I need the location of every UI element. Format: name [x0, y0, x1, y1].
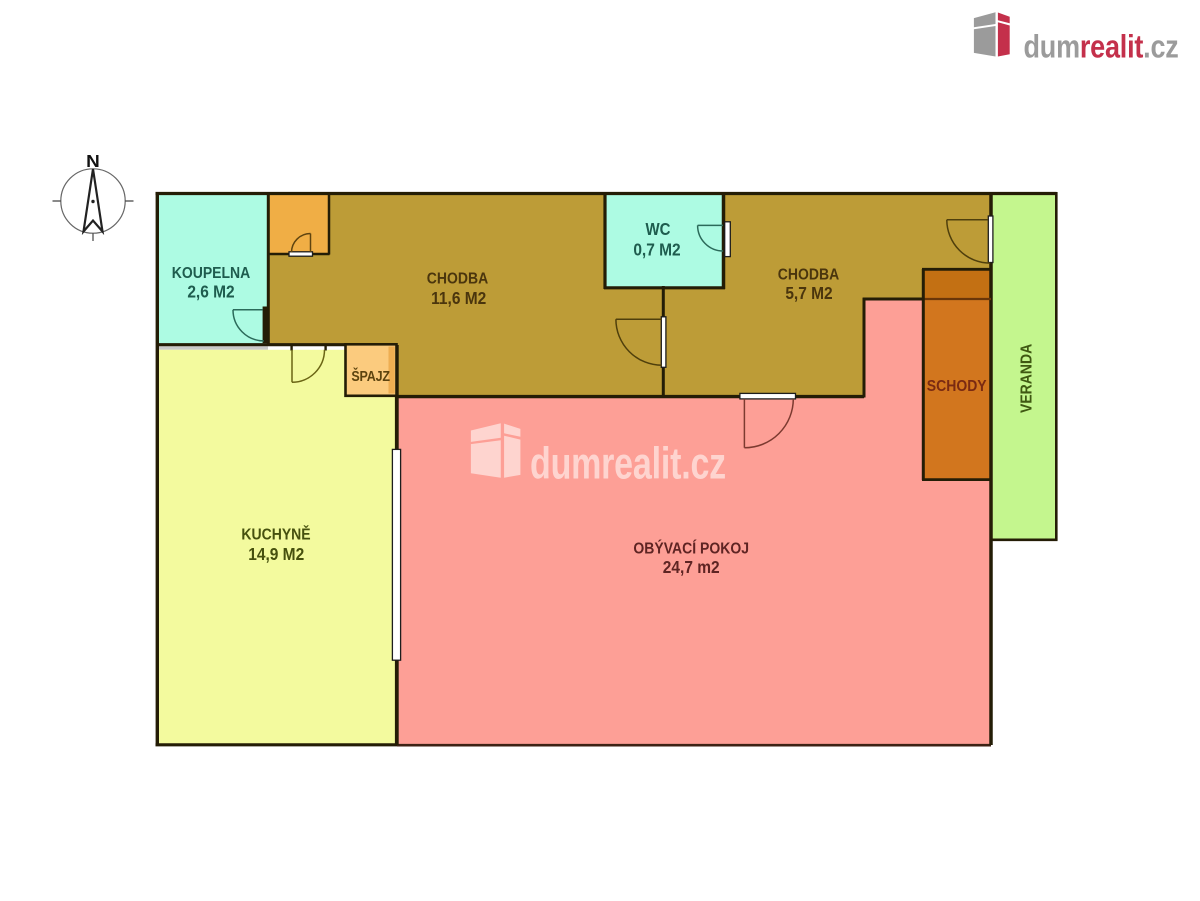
svg-text:dumrealit.cz: dumrealit.cz	[530, 439, 726, 488]
svg-text:CHODBA: CHODBA	[778, 266, 840, 284]
svg-text:N: N	[86, 152, 100, 171]
svg-text:OBÝVACÍ POKOJ: OBÝVACÍ POKOJ	[633, 539, 749, 558]
svg-text:11,6 M2: 11,6 M2	[431, 288, 486, 308]
svg-text:ŠPAJZ: ŠPAJZ	[351, 368, 389, 384]
svg-text:SCHODY: SCHODY	[927, 377, 987, 395]
svg-text:CHODBA: CHODBA	[427, 270, 489, 288]
svg-text:KOUPELNA: KOUPELNA	[172, 264, 251, 282]
svg-text:VERANDA: VERANDA	[1018, 344, 1036, 413]
svg-text:KUCHYNĚ: KUCHYNĚ	[241, 525, 310, 544]
svg-text:14,9 M2: 14,9 M2	[248, 544, 304, 564]
svg-text:WC: WC	[646, 220, 671, 239]
svg-text:0,7 M2: 0,7 M2	[633, 240, 680, 260]
svg-text:dumrealit.cz: dumrealit.cz	[1024, 29, 1179, 65]
svg-text:24,7 m2: 24,7 m2	[663, 557, 720, 577]
svg-text:2,6 M2: 2,6 M2	[187, 281, 234, 301]
svg-text:5,7 M2: 5,7 M2	[785, 283, 832, 303]
